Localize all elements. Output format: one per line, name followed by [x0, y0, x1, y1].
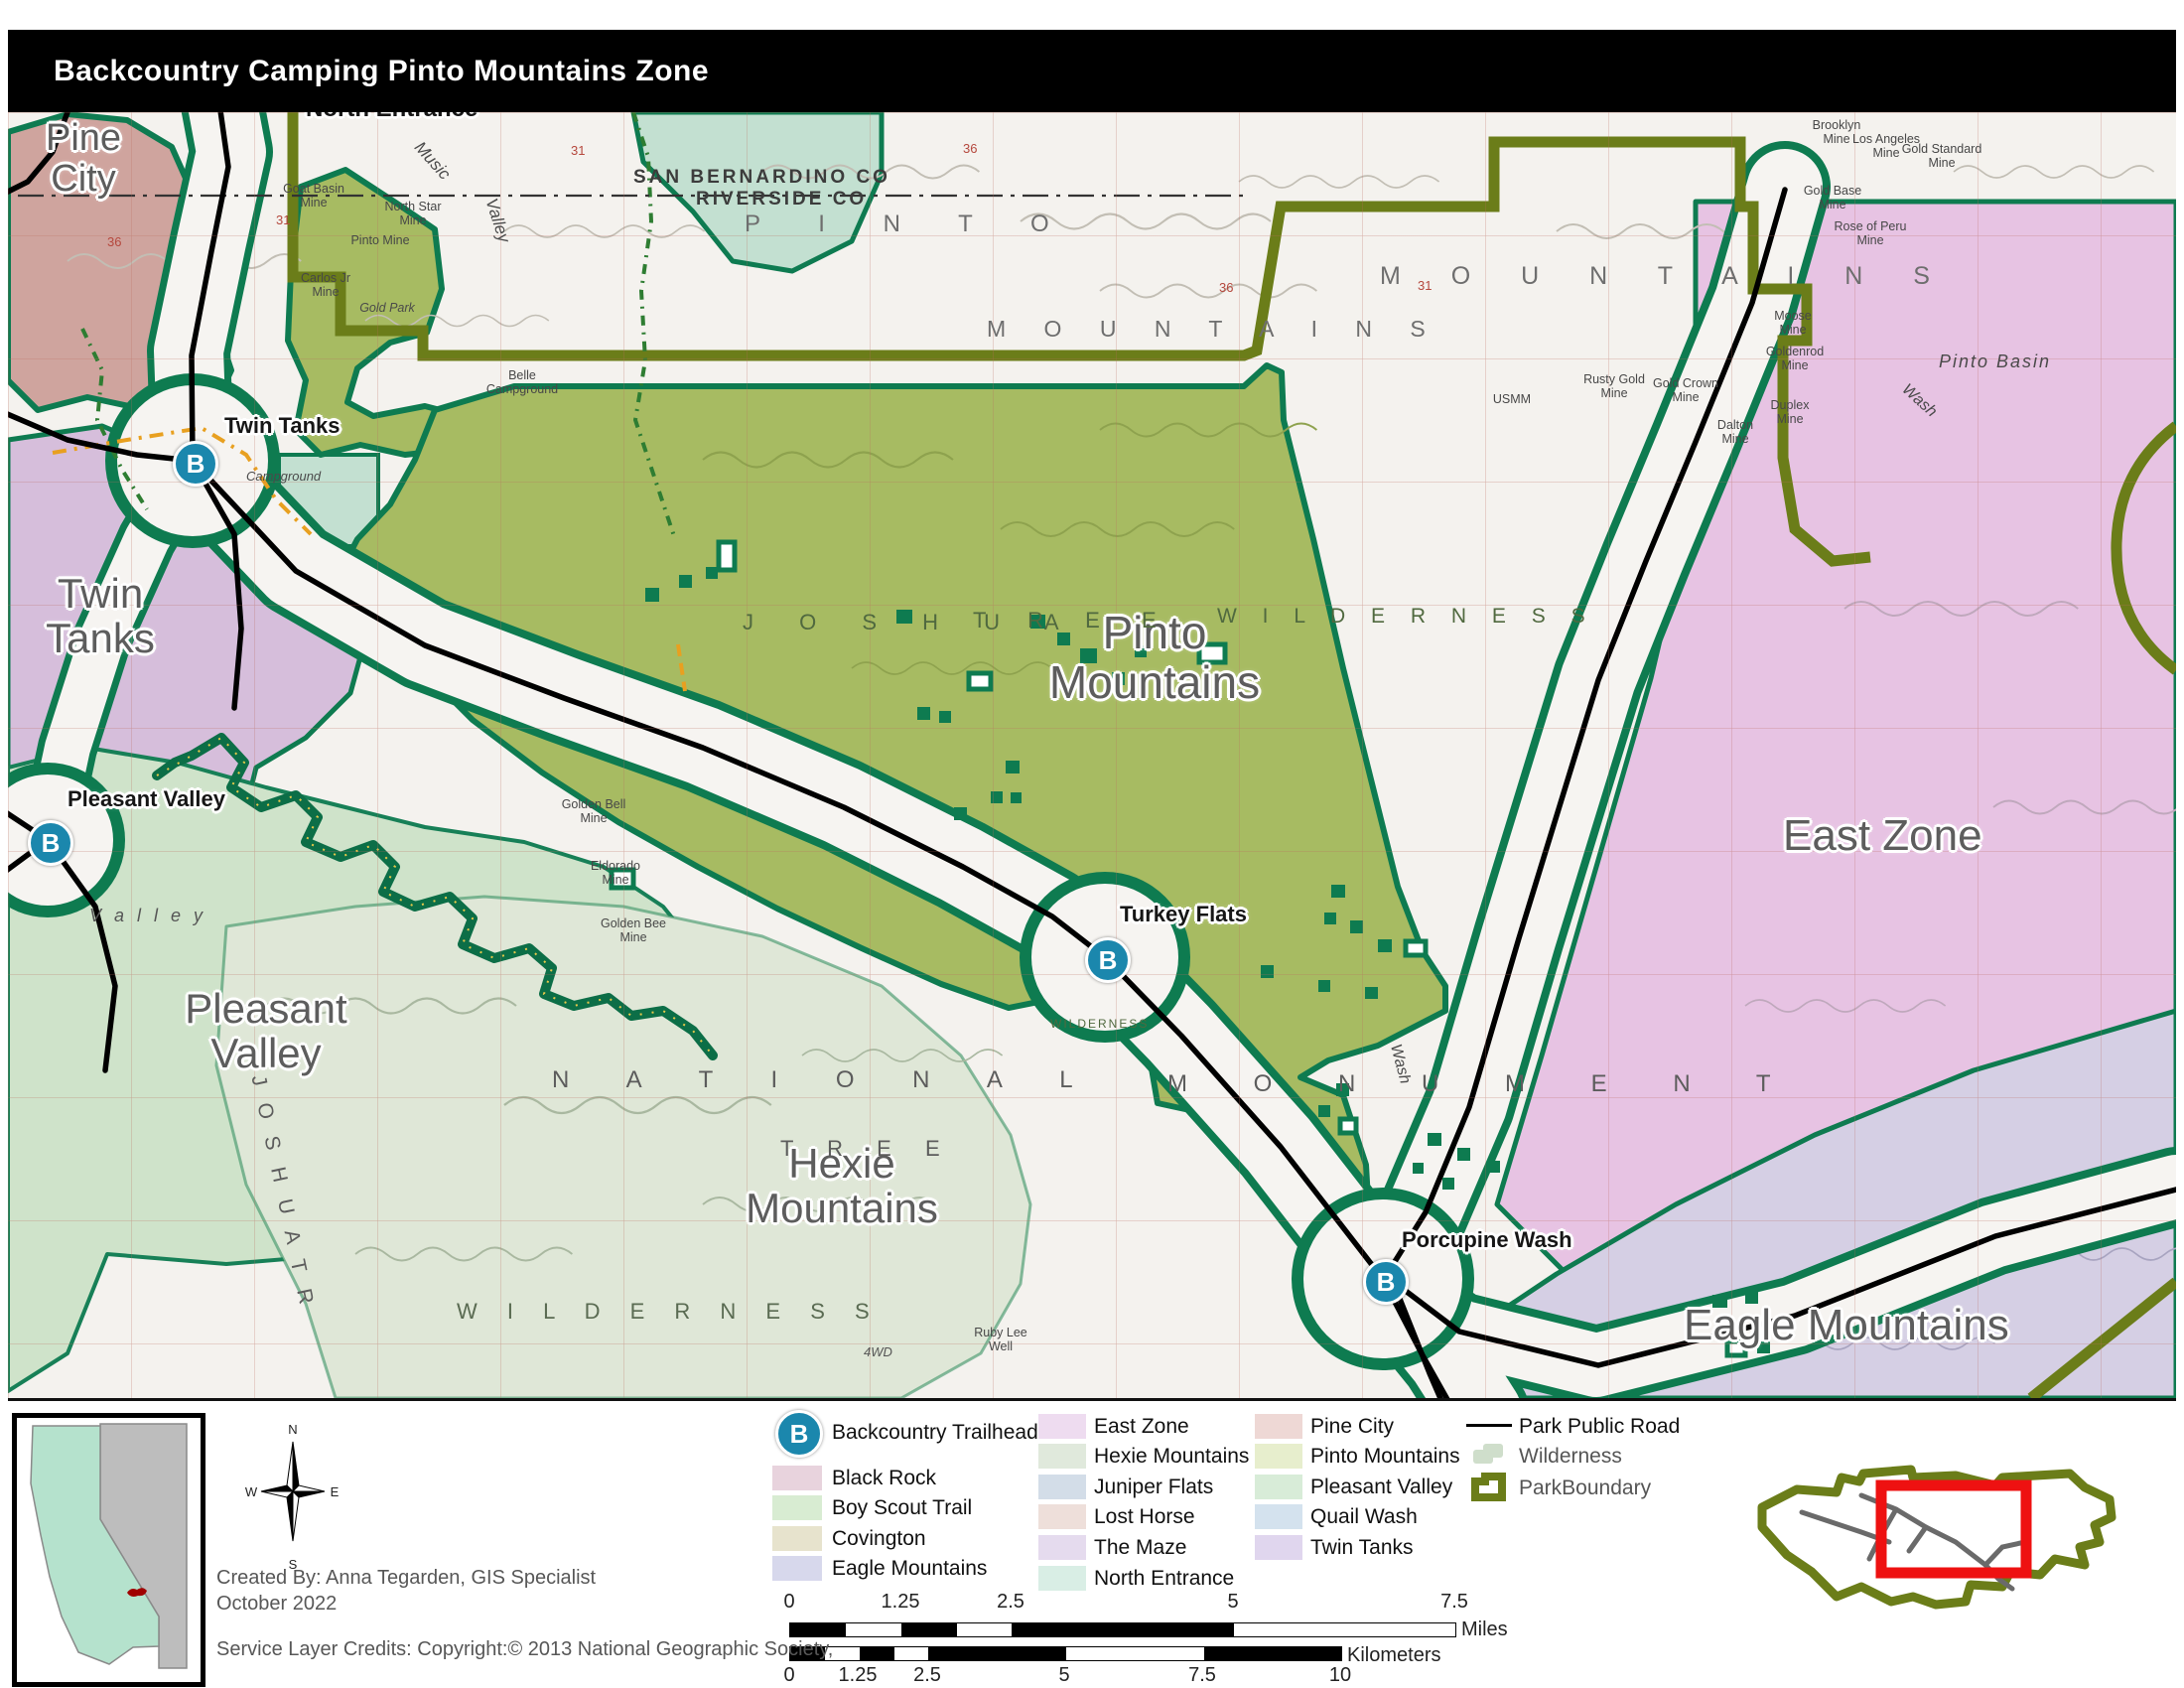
legend-label-hexie: Hexie Mountains: [1094, 1445, 1249, 1469]
legend-label-covington: Covington: [832, 1527, 926, 1551]
legend-swatch-pinto-mountains: [1255, 1444, 1302, 1469]
legend-label-quail-wash: Quail Wash: [1310, 1505, 1418, 1529]
topo-label-tree-2: T R E E: [780, 1137, 954, 1161]
legend-label-trailhead: Backcountry Trailhead: [832, 1421, 1038, 1445]
legend-boundary-icon: [1469, 1472, 1509, 1503]
legend-label-pine-city: Pine City: [1310, 1415, 1394, 1439]
california-locator-inset: [12, 1413, 205, 1687]
map-canvas: Pine City Twin Tanks Pleasant Valley Hex…: [8, 112, 2176, 1401]
topo-label-mountains-2: M O U N T A I N S: [1380, 263, 1952, 290]
legend-swatch-eagle-mountains: [772, 1556, 822, 1581]
mine-label: Moose Mine: [1748, 309, 1838, 338]
topo-label-pinto: P I N T O: [745, 211, 1075, 237]
compass-n: N: [288, 1422, 297, 1437]
scale-unit-kilometers: Kilometers: [1347, 1644, 1440, 1667]
legend-swatch-north-entrance: [1038, 1566, 1086, 1591]
legend-swatch-juniper-flats: [1038, 1475, 1086, 1499]
legend-swatch-east-zone: [1038, 1414, 1086, 1439]
mine-label: Rose of Peru Mine: [1826, 219, 1915, 248]
legend-label-pleasant-valley: Pleasant Valley: [1310, 1476, 1452, 1499]
scale-km-tick: 0: [783, 1664, 794, 1687]
legend-swatch-pleasant-valley: [1255, 1475, 1302, 1499]
credit-line-3: Service Layer Credits: Copyright:© 2013 …: [216, 1638, 833, 1661]
topo-label-campground: Campground: [246, 470, 321, 484]
topo-label-mountains: M O U N T A I N S: [987, 317, 1441, 342]
topo-label-monument: M O N U M E N T: [1167, 1071, 1801, 1097]
compass-e: E: [331, 1484, 340, 1499]
legend-label-twin-tanks: Twin Tanks: [1310, 1536, 1414, 1560]
legend-swatch-twin-tanks: [1255, 1535, 1302, 1560]
map-layers: [8, 112, 2176, 1398]
trailhead-marker-porcupine-wash: B: [1363, 1259, 1409, 1305]
legend-label-black-rock: Black Rock: [832, 1467, 936, 1490]
california-map: [17, 1418, 193, 1674]
park-extent-inset: [1742, 1448, 2134, 1641]
scale-miles-tick: 1.25: [882, 1591, 920, 1614]
legend-label-the-maze: The Maze: [1094, 1536, 1186, 1560]
scale-km-tick: 10: [1329, 1664, 1351, 1687]
scale-km-tick: 2.5: [913, 1664, 941, 1687]
credit-line-2: October 2022: [216, 1593, 337, 1616]
zone-label-pleasant-valley: Pleasant Valley: [147, 986, 385, 1076]
topo-label-wilderness-2: W I L D E R N E S S: [457, 1300, 882, 1324]
scale-km-tick: 5: [1058, 1664, 1069, 1687]
legend-label-east-zone: East Zone: [1094, 1415, 1189, 1439]
section-number: 31: [276, 213, 290, 227]
trailhead-marker-turkey-flats: B: [1085, 937, 1131, 983]
trailhead-label-north-entrance: North Entrance: [306, 112, 478, 122]
zone-label-pine-city: Pine City: [14, 118, 153, 200]
trailhead-marker-letter: B: [1099, 945, 1118, 976]
trailhead-marker-letter: B: [187, 449, 205, 480]
compass-w: W: [245, 1484, 258, 1499]
mine-label: Gold Standard Mine: [1897, 142, 1986, 171]
mine-label: Goat Basin Mine: [269, 182, 358, 211]
scale-bar-miles: [789, 1622, 1456, 1637]
map-document: Backcountry Camping Pinto Mountains Zone: [0, 0, 2184, 1688]
page-title: Backcountry Camping Pinto Mountains Zone: [54, 55, 709, 88]
credit-line-1: Created By: Anna Tegarden, GIS Specialis…: [216, 1567, 596, 1590]
trailhead-label-pleasant-valley: Pleasant Valley: [68, 787, 225, 811]
topo-label-4wd: 4WD: [864, 1345, 892, 1359]
north-arrow: N S W E: [243, 1420, 342, 1574]
topo-label-valley-pv: V a l l e y: [89, 907, 206, 925]
zone-label-east-zone: East Zone: [1783, 812, 1982, 860]
mine-label: Gold Crown Mine: [1641, 376, 1730, 405]
zone-label-eagle: Eagle Mountains: [1684, 1302, 2009, 1349]
legend-swatch-pine-city: [1255, 1414, 1302, 1439]
legend-label-north-entrance: North Entrance: [1094, 1567, 1234, 1591]
legend-label-boy-scout: Boy Scout Trail: [832, 1496, 972, 1520]
section-number: 31: [571, 144, 585, 158]
scale-miles-tick: 2.5: [997, 1591, 1024, 1614]
zone-label-twin-tanks: Twin Tanks: [16, 571, 185, 661]
map-extent-rectangle: [1881, 1485, 2026, 1573]
mine-label: Dalton Mine: [1691, 418, 1780, 447]
title-bar: Backcountry Camping Pinto Mountains Zone: [8, 30, 2176, 112]
section-number: 31: [1418, 279, 1432, 293]
section-number: 36: [107, 235, 121, 249]
scale-km-tick: 1.25: [839, 1664, 878, 1687]
legend-swatch-the-maze: [1038, 1535, 1086, 1560]
trailhead-label-turkey-flats: Turkey Flats: [1120, 903, 1247, 926]
legend-trailhead-letter: B: [790, 1419, 809, 1450]
mine-label: Ruby Lee Well: [956, 1326, 1045, 1354]
trailhead-label-twin-tanks: Twin Tanks: [224, 414, 341, 438]
scale-km-tick: 7.5: [1188, 1664, 1216, 1687]
legend-label-pinto-mountains: Pinto Mountains: [1310, 1445, 1460, 1469]
legend-label-wilderness: Wilderness: [1519, 1445, 1622, 1469]
topo-label-pinto-basin: Pinto Basin: [1939, 352, 2051, 371]
mine-label: Golden Bell Mine: [549, 797, 638, 826]
legend-road-icon: [1466, 1424, 1512, 1427]
topo-label-wilderness-tiny: WILDERNESS: [1050, 1018, 1149, 1031]
legend-swatch-boy-scout: [772, 1495, 822, 1520]
legend-swatch-black-rock: [772, 1466, 822, 1490]
trailhead-label-porcupine-wash: Porcupine Wash: [1402, 1228, 1572, 1252]
legend-swatch-covington: [772, 1526, 822, 1551]
legend-swatch-lost-horse: [1038, 1504, 1086, 1529]
mine-label: Golden Bee Mine: [589, 916, 678, 945]
county-label-riverside: RIVERSIDE CO: [696, 190, 867, 211]
legend-label-lost-horse: Lost Horse: [1094, 1505, 1195, 1529]
section-number: 36: [963, 142, 977, 156]
mine-label: Gold Park: [342, 301, 432, 315]
legend-label-road: Park Public Road: [1519, 1415, 1680, 1439]
scale-unit-miles: Miles: [1461, 1618, 1508, 1641]
mine-label: Gold Base Mine: [1788, 184, 1877, 212]
trailhead-marker-pleasant-valley: B: [28, 820, 73, 866]
legend-wilderness-icon: [1471, 1442, 1507, 1470]
legend-label-eagle-mountains: Eagle Mountains: [832, 1557, 987, 1581]
trailhead-marker-letter: B: [1377, 1267, 1396, 1298]
trailhead-marker-twin-tanks: B: [173, 441, 218, 487]
mine-label: North Star Mine: [368, 200, 458, 228]
mine-label: Carlos Jr Mine: [281, 271, 370, 300]
legend-swatch-quail-wash: [1255, 1504, 1302, 1529]
legend-swatch-hexie: [1038, 1444, 1086, 1469]
scale-miles-tick: 0: [783, 1591, 794, 1614]
mine-label: Goldenrod Mine: [1750, 345, 1840, 373]
scale-bar-kilometers: [789, 1646, 1342, 1661]
topo-label-usmm: USMM: [1467, 392, 1557, 406]
scale-miles-tick: 7.5: [1440, 1591, 1468, 1614]
mine-label: Pinto Mine: [336, 233, 425, 247]
county-label-san-bernardino: SAN BERNARDINO CO: [633, 168, 890, 189]
topo-label-wilderness: W I L D E R N E S S: [1217, 606, 1595, 629]
trailhead-marker-letter: B: [42, 828, 61, 859]
legend-label-juniper-flats: Juniper Flats: [1094, 1476, 1213, 1499]
topo-label-tree: T R E E: [973, 609, 1174, 633]
section-number: 36: [1219, 281, 1233, 295]
topo-label-national: N A T I O N A L: [552, 1067, 1099, 1093]
mine-label: Belle Campground: [478, 368, 567, 397]
legend-trailhead-marker: B: [775, 1410, 823, 1458]
scale-miles-tick: 5: [1227, 1591, 1238, 1614]
legend-label-boundary: ParkBoundary: [1519, 1477, 1651, 1500]
mine-label: Eldorado Mine: [571, 859, 660, 888]
